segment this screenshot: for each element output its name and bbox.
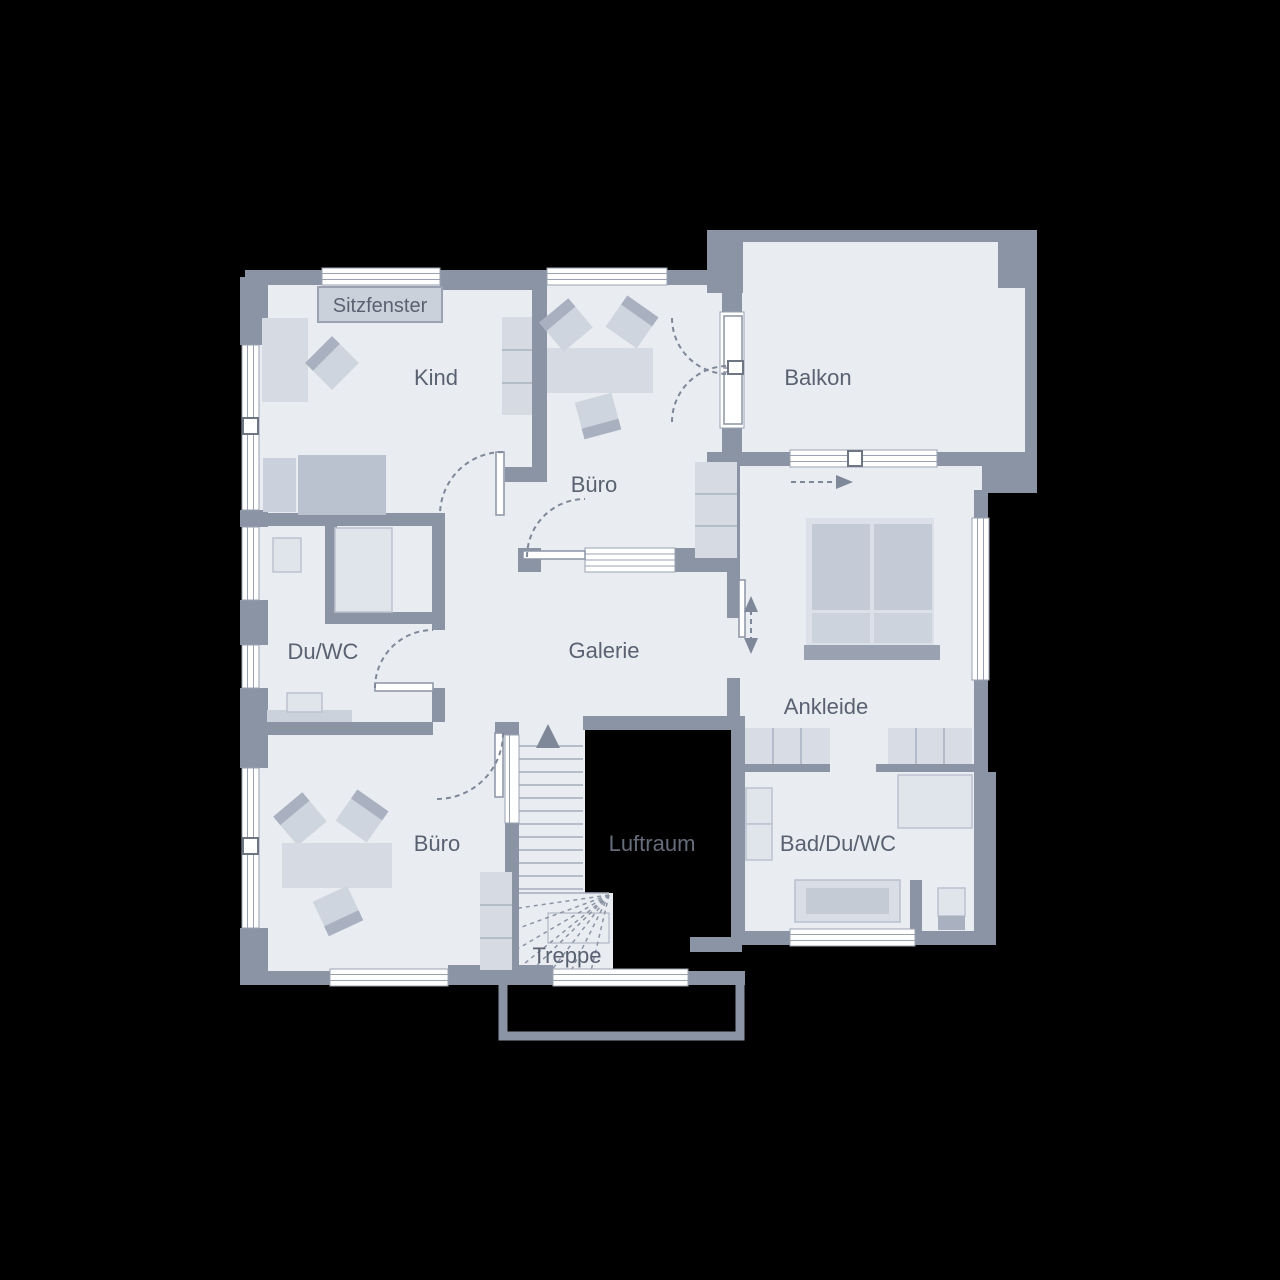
sliding-window-balkon <box>790 450 937 467</box>
room-label-ankleide: Ankleide <box>784 694 868 719</box>
window-north-kind <box>322 268 440 285</box>
closet-row <box>888 728 972 764</box>
room-label-treppe: Treppe <box>533 943 602 968</box>
room-label-buero-top: Büro <box>571 472 617 497</box>
wardrobe <box>695 462 737 558</box>
window-west-duwc-lower <box>242 645 259 688</box>
washbasin <box>746 824 772 860</box>
window-south-treppe <box>553 969 688 986</box>
bed-pillow <box>874 613 932 643</box>
washbasin <box>746 788 772 824</box>
bed-mattress <box>812 524 870 610</box>
washbasin <box>273 538 301 572</box>
room-label-kind: Kind <box>414 365 458 390</box>
desk <box>282 843 392 888</box>
room-label-sitzfenster: Sitzfenster <box>333 295 428 317</box>
window-north-buero <box>547 268 667 285</box>
room-label-luftraum: Luftraum <box>609 831 696 856</box>
room-label-balkon: Balkon <box>784 365 851 390</box>
room-label-bad-duwc: Bad/Du/WC <box>780 831 896 856</box>
desk <box>547 348 653 393</box>
bed-pillow <box>263 458 296 512</box>
window-west-kind <box>242 345 259 510</box>
window-south-bad <box>790 929 915 946</box>
bed <box>298 455 386 515</box>
shower <box>898 775 972 828</box>
floor-plan-drawing: Sitzfenster Kind Büro Balkon Du/WC Galer… <box>0 0 1280 1280</box>
window-south-buero <box>330 969 448 986</box>
closet-row <box>745 728 830 764</box>
floor-plan-canvas: Sitzfenster Kind Büro Balkon Du/WC Galer… <box>0 0 1280 1280</box>
toilet-cistern <box>938 916 965 930</box>
desk <box>262 318 308 402</box>
room-label-buero-bottom: Büro <box>414 831 460 856</box>
window-west-duwc-upper <box>242 527 259 600</box>
room-label-galerie: Galerie <box>569 638 640 663</box>
bathtub-inner <box>806 888 889 914</box>
window-west-buero <box>242 768 259 928</box>
wardrobe <box>502 317 532 415</box>
glazing-stair-wall <box>505 735 519 823</box>
cabinet <box>480 872 512 970</box>
bed-mattress <box>874 524 932 610</box>
room-label-duwc: Du/WC <box>288 639 359 664</box>
shower <box>335 528 392 612</box>
washbasin <box>287 693 322 712</box>
window-east-schlafen <box>972 518 989 680</box>
toilet <box>938 888 965 916</box>
glazing-galerie-buero <box>585 548 675 572</box>
bed-footboard <box>804 645 940 660</box>
bed-pillow <box>812 613 870 643</box>
